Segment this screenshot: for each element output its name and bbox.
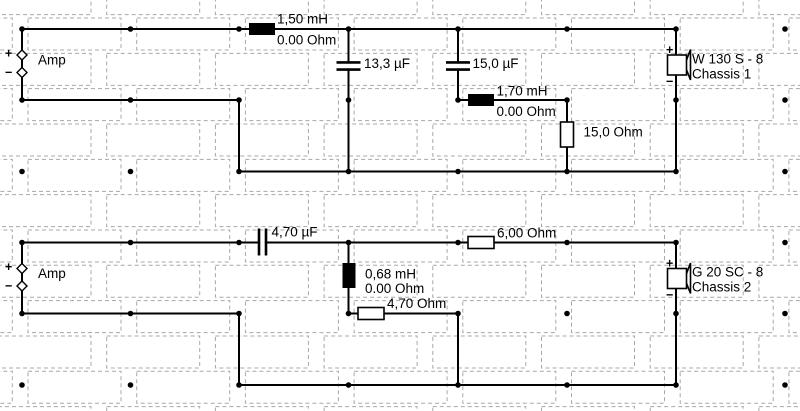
component-slot-brick [28, 159, 121, 191]
speaker-1-minus-label: − [666, 75, 673, 89]
component-slot-brick [542, 195, 635, 227]
speaker-2-chassis-label: Chassis 2 [692, 280, 751, 295]
component-slot-brick [680, 230, 773, 262]
grid-node-dot[interactable] [564, 311, 570, 317]
component-slot-brick [650, 195, 743, 227]
component-slot-brick [0, 407, 91, 411]
component-slot-brick [215, 195, 308, 227]
grid-node-dot[interactable] [19, 382, 25, 388]
component-slot-brick [0, 18, 12, 50]
amp-2-minus-label: − [5, 279, 12, 293]
component-slot-brick [463, 371, 556, 403]
amp-2-plus-terminal[interactable] [17, 264, 27, 274]
component-slot-brick [107, 195, 200, 227]
capacitor-2-value-label: 15,0 µF [473, 56, 519, 71]
component-slot-brick [354, 18, 447, 50]
circuit-1: + − Amp 1,50 mH 0.00 Ohm 13,3 µF 15,0 µF… [5, 12, 763, 172]
component-slot-brick [28, 18, 121, 50]
component-slot-brick [215, 265, 308, 297]
speaker-1-body[interactable] [668, 55, 687, 75]
component-slot-brick [572, 89, 665, 121]
component-slot-brick [463, 301, 556, 333]
component-slot-brick [215, 53, 308, 85]
inductor-3-resistance-label: 0.00 Ohm [365, 281, 424, 296]
component-slot-brick [354, 89, 447, 121]
resistor-1[interactable]: 15,0 Ohm [561, 122, 643, 147]
component-slot-brick [789, 230, 800, 262]
component-slot-brick [759, 53, 800, 85]
component-slot-brick [542, 53, 635, 85]
component-slot-brick [107, 265, 200, 297]
component-slot-brick [28, 89, 121, 121]
component-slot-brick [680, 18, 773, 50]
speaker-1-plus-label: + [666, 43, 673, 57]
inductor-2-value-label: 1,70 mH [497, 84, 548, 99]
inductor-3-value-label: 0,68 mH [365, 267, 416, 282]
component-slot-brick [28, 230, 121, 262]
component-slot-brick [0, 89, 12, 121]
resistor-2[interactable]: 6,00 Ohm [468, 226, 556, 249]
component-slot-brick [0, 159, 12, 191]
resistor-3-value-label: 4,70 Ohm [387, 296, 446, 311]
component-slot-brick [572, 159, 665, 191]
component-slot-brick [107, 336, 200, 368]
inductor-2[interactable]: 1,70 mH 0.00 Ohm [468, 84, 556, 120]
grid-node-dot[interactable] [782, 240, 788, 246]
capacitor-2[interactable]: 15,0 µF [446, 56, 519, 71]
grid-node-dot[interactable] [782, 169, 788, 175]
component-slot-brick [137, 301, 230, 333]
component-slot-brick [107, 407, 200, 411]
component-slot-brick [354, 159, 447, 191]
inductor-3[interactable]: 0,68 mH 0.00 Ohm [343, 263, 425, 296]
amp-1-plus-terminal[interactable] [17, 50, 27, 60]
grid-node-dot[interactable] [782, 97, 788, 103]
component-slot-brick [789, 371, 800, 403]
component-slot-brick [245, 89, 338, 121]
component-slot-brick [245, 159, 338, 191]
schematic-canvas: + − Amp 1,50 mH 0.00 Ohm 13,3 µF 15,0 µF… [0, 0, 800, 411]
component-slot-brick [245, 371, 338, 403]
speaker-2[interactable]: + − G 20 SC - 8 Chassis 2 [666, 257, 763, 303]
component-slot-brick [542, 336, 635, 368]
component-slot-brick [107, 0, 200, 15]
component-slot-brick [463, 18, 556, 50]
component-slot-brick [324, 336, 417, 368]
component-slot-brick [0, 124, 91, 156]
component-slot-brick [680, 371, 773, 403]
component-slot-brick [433, 265, 526, 297]
resistor-2-value-label: 6,00 Ohm [497, 226, 556, 241]
component-slot-brick [680, 159, 773, 191]
component-slot-brick [789, 18, 800, 50]
component-slot-brick [354, 230, 447, 262]
inductor-2-resistance-label: 0.00 Ohm [497, 104, 556, 119]
component-slot-brick [0, 371, 12, 403]
component-slot-brick [789, 301, 800, 333]
component-slot-brick [433, 195, 526, 227]
component-slot-brick [433, 407, 526, 411]
component-slot-brick [650, 336, 743, 368]
component-slot-brick [245, 301, 338, 333]
amp-1-minus-label: − [5, 66, 12, 80]
component-slot-brick [28, 301, 121, 333]
grid-node-dot[interactable] [19, 169, 25, 175]
speaker-1-model-label: W 130 S - 8 [692, 52, 763, 67]
amp-2-plus-label: + [5, 260, 12, 274]
component-slot-brick [324, 0, 417, 15]
component-slot-brick [572, 230, 665, 262]
speaker-2-minus-label: − [666, 288, 673, 302]
component-slot-brick [137, 371, 230, 403]
amp-2-label: Amp [38, 266, 66, 281]
component-slot-brick [324, 124, 417, 156]
resistor-3-body[interactable] [358, 308, 384, 320]
component-slot-brick [215, 336, 308, 368]
component-slot-brick [354, 371, 447, 403]
resistor-1-value-label: 15,0 Ohm [584, 125, 643, 140]
component-slot-brick [680, 301, 773, 333]
amp-1-label: Amp [38, 53, 66, 68]
inductor-1-body[interactable] [249, 23, 275, 35]
speaker-2-model-label: G 20 SC - 8 [692, 265, 763, 280]
inductor-2-body[interactable] [468, 94, 494, 106]
component-slot-brick [107, 53, 200, 85]
amp-1-plus-label: + [5, 47, 12, 61]
component-slot-brick [0, 336, 91, 368]
capacitor-3-value-label: 4,70 µF [272, 225, 318, 240]
speaker-2-body[interactable] [668, 269, 687, 289]
component-slot-brick [650, 124, 743, 156]
component-slot-brick [759, 407, 800, 411]
component-slot-brick [650, 407, 743, 411]
speaker-1-chassis-label: Chassis 1 [692, 67, 751, 82]
component-slot-brick [789, 89, 800, 121]
component-slot-brick [215, 407, 308, 411]
component-slot-brick [680, 89, 773, 121]
component-slot-brick [789, 159, 800, 191]
component-slot-brick [0, 0, 91, 15]
circuit-2: + − Amp 4,70 µF 6,00 Ohm 0,68 mH 0.00 Oh… [5, 225, 763, 386]
speaker-2-plus-label: + [666, 257, 673, 271]
grid-node-dot[interactable] [782, 311, 788, 317]
component-slot-brick [0, 195, 91, 227]
component-slot-brick [542, 407, 635, 411]
component-slot-brick [433, 0, 526, 15]
component-slot-brick [433, 124, 526, 156]
grid-node-dot[interactable] [782, 26, 788, 32]
component-slot-brick [0, 230, 12, 262]
component-slot-brick [759, 195, 800, 227]
component-slot-brick [463, 159, 556, 191]
component-slot-brick [542, 0, 635, 15]
component-slot-brick [572, 301, 665, 333]
component-slot-brick [137, 230, 230, 262]
component-slot-brick [759, 336, 800, 368]
amp-1-minus-terminal[interactable] [17, 68, 27, 78]
inductor-3-body[interactable] [343, 263, 356, 288]
component-slot-brick [572, 371, 665, 403]
component-slot-brick [759, 0, 800, 15]
component-slot-brick [137, 89, 230, 121]
component-slot-brick [324, 195, 417, 227]
component-slot-brick [215, 124, 308, 156]
component-slot-brick [572, 18, 665, 50]
grid-node-dot[interactable] [128, 382, 134, 388]
component-slot-brick [28, 371, 121, 403]
capacitor-1-value-label: 13,3 µF [364, 56, 410, 71]
inductor-1-resistance-label: 0.00 Ohm [277, 33, 336, 48]
resistor-1-body[interactable] [561, 122, 574, 147]
grid-node-dot[interactable] [782, 382, 788, 388]
component-slot-brick [137, 18, 230, 50]
component-slot-brick [650, 0, 743, 15]
inductor-1-value-label: 1,50 mH [277, 12, 328, 27]
component-slot-brick [107, 124, 200, 156]
amp-2-minus-terminal[interactable] [17, 281, 27, 291]
component-slot-brick [759, 265, 800, 297]
component-slot-brick [137, 159, 230, 191]
component-slot-brick [542, 265, 635, 297]
component-slot-brick [759, 124, 800, 156]
capacitor-3[interactable]: 4,70 µF [259, 225, 318, 256]
resistor-3[interactable]: 4,70 Ohm [358, 296, 446, 320]
component-slot-brick [0, 301, 12, 333]
component-slot-brick [433, 336, 526, 368]
amp-1[interactable]: + − Amp [5, 47, 66, 80]
grid-node-dot[interactable] [128, 169, 134, 175]
resistor-2-body[interactable] [468, 237, 494, 249]
component-slot-brick [324, 407, 417, 411]
